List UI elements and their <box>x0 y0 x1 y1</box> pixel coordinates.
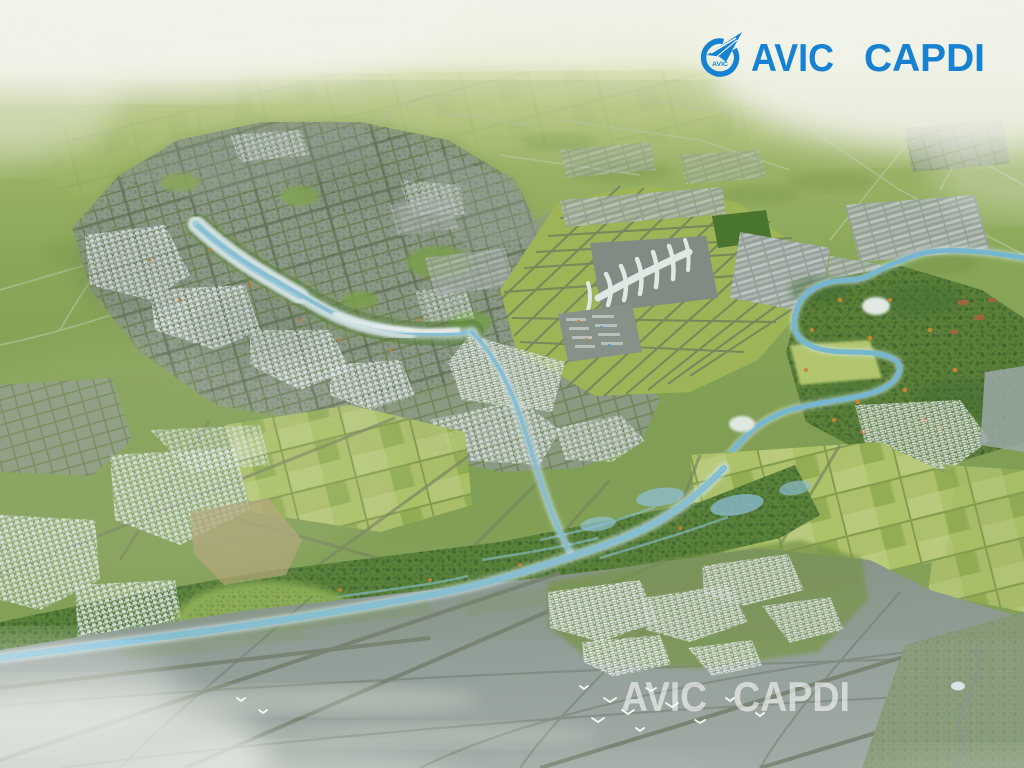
svg-text:AVIC: AVIC <box>621 673 707 720</box>
svg-text:CAPDI: CAPDI <box>733 673 850 720</box>
svg-text:AVIC: AVIC <box>712 62 729 68</box>
svg-text:CAPDI: CAPDI <box>864 37 985 80</box>
svg-text:AVIC: AVIC <box>751 37 834 80</box>
